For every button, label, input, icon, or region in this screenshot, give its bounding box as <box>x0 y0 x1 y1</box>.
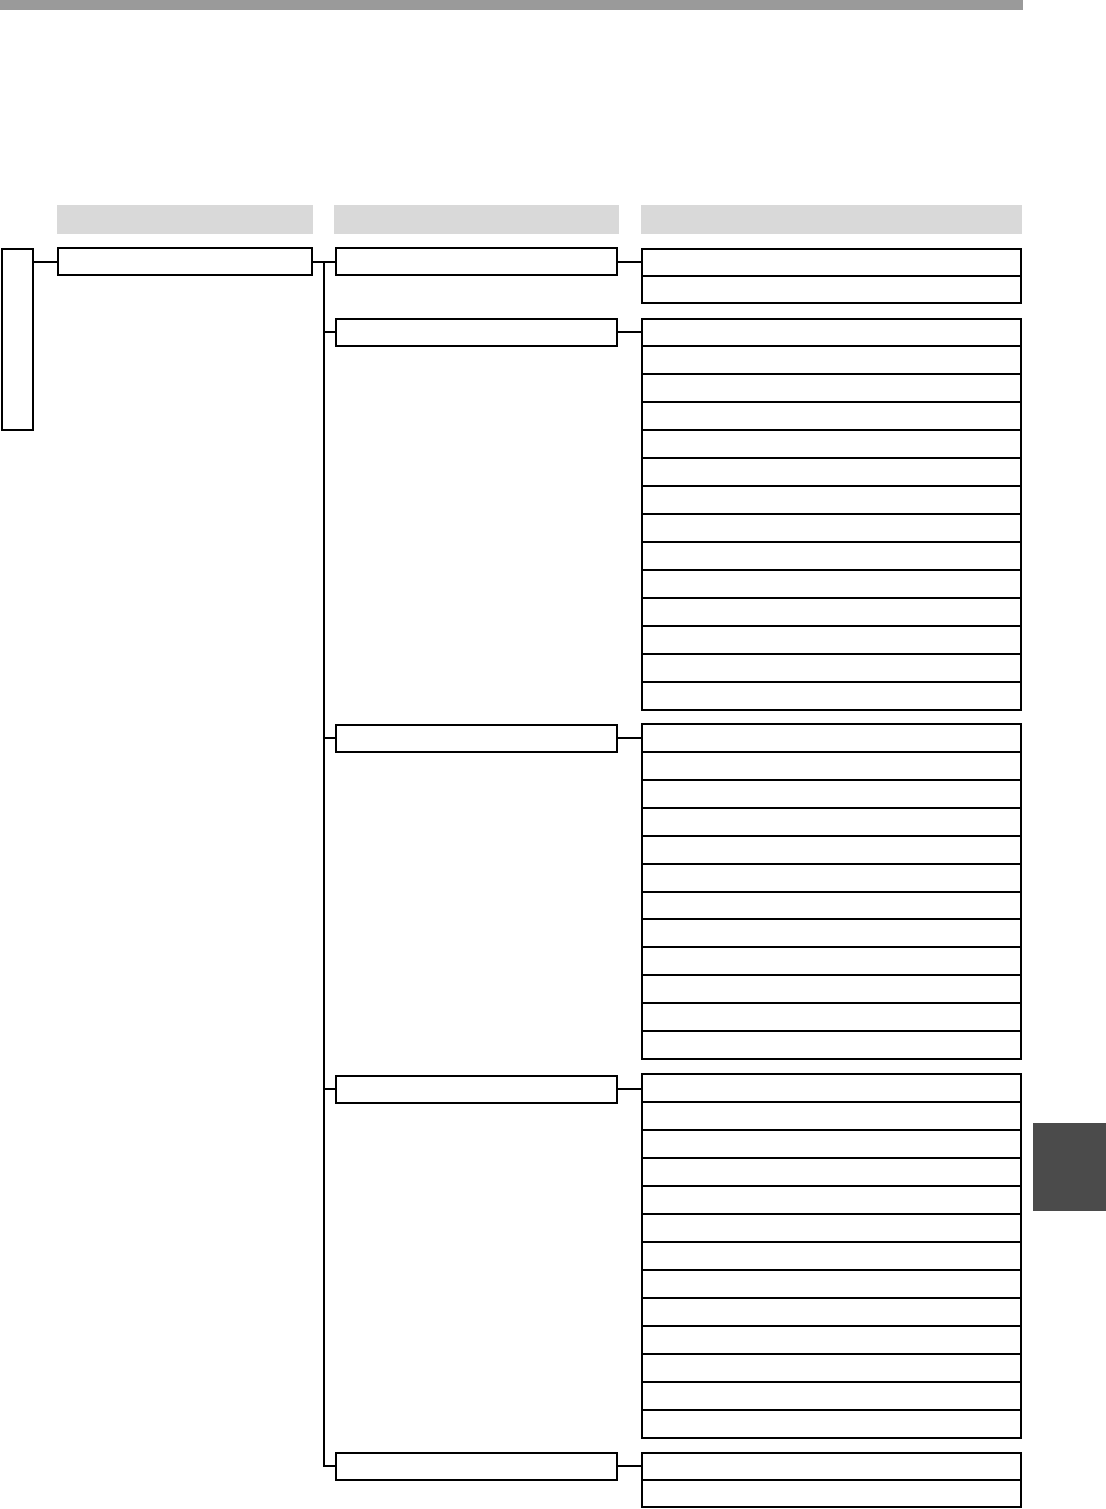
column-2-header-bar <box>334 205 619 234</box>
level3-item-row <box>643 1129 1020 1157</box>
level3-item-group <box>641 723 1022 1060</box>
level3-item-row <box>643 1030 1020 1058</box>
level3-item-row <box>643 513 1020 541</box>
level3-item-row <box>643 1101 1020 1129</box>
level3-item-row <box>643 457 1020 485</box>
level3-item-row <box>643 1454 1020 1479</box>
level3-item-row <box>643 429 1020 457</box>
level3-item-row <box>643 569 1020 597</box>
level2-menu-box <box>335 1452 618 1481</box>
connector-line <box>323 1465 335 1467</box>
level3-item-row <box>643 946 1020 974</box>
chapter-side-tab <box>1033 1123 1106 1211</box>
connector-line <box>34 261 57 263</box>
level3-item-group <box>641 318 1022 712</box>
level3-item-row <box>643 597 1020 625</box>
connector-line <box>618 261 641 263</box>
level3-item-row <box>643 835 1020 863</box>
level3-item-row <box>643 807 1020 835</box>
level3-item-row <box>643 485 1020 513</box>
connector-line <box>618 737 641 739</box>
level3-item-group <box>641 1452 1022 1508</box>
level3-item-row <box>643 250 1020 275</box>
level3-item-row <box>643 863 1020 891</box>
level3-item-row <box>643 1353 1020 1381</box>
level3-item-row <box>643 779 1020 807</box>
level1-menu-box <box>57 247 313 276</box>
connector-line <box>618 1465 641 1467</box>
level2-menu-box <box>335 724 618 753</box>
connector-line <box>618 1088 641 1090</box>
level2-menu-box <box>335 247 618 276</box>
level3-item-row <box>643 1241 1020 1269</box>
column-3-header-bar <box>641 205 1022 234</box>
root-tab-box <box>1 248 34 431</box>
level3-item-row <box>643 1409 1020 1437</box>
level3-item-row <box>643 681 1020 709</box>
level3-item-row <box>643 1213 1020 1241</box>
level2-menu-box <box>335 318 618 347</box>
page-top-rule <box>0 0 1023 10</box>
level3-item-row <box>643 541 1020 569</box>
level3-item-group <box>641 1073 1022 1439</box>
level3-item-row <box>643 1479 1020 1506</box>
level3-item-group <box>641 248 1022 304</box>
connector-line <box>323 1088 335 1090</box>
level3-item-row <box>643 625 1020 653</box>
level3-item-row <box>643 373 1020 401</box>
connector-line <box>323 737 335 739</box>
level3-item-row <box>643 1325 1020 1353</box>
level3-item-row <box>643 974 1020 1002</box>
level3-item-row <box>643 401 1020 429</box>
level3-item-row <box>643 1297 1020 1325</box>
level3-item-row <box>643 345 1020 373</box>
level3-item-row <box>643 918 1020 946</box>
level3-item-row <box>643 1185 1020 1213</box>
connector-line <box>323 261 325 1467</box>
column-1-header-bar <box>57 205 313 234</box>
level3-item-row <box>643 1075 1020 1101</box>
level3-item-row <box>643 751 1020 779</box>
level3-item-row <box>643 1002 1020 1030</box>
level3-item-row <box>643 1269 1020 1297</box>
level3-item-row <box>643 1157 1020 1185</box>
level3-item-row <box>643 1381 1020 1409</box>
connector-line <box>323 331 335 333</box>
level2-menu-box <box>335 1075 618 1104</box>
level3-item-row <box>643 320 1020 346</box>
connector-line <box>618 331 641 333</box>
level3-item-row <box>643 891 1020 919</box>
level3-item-row <box>643 725 1020 751</box>
manual-page <box>0 0 1106 1509</box>
level3-item-row <box>643 275 1020 302</box>
level3-item-row <box>643 653 1020 681</box>
